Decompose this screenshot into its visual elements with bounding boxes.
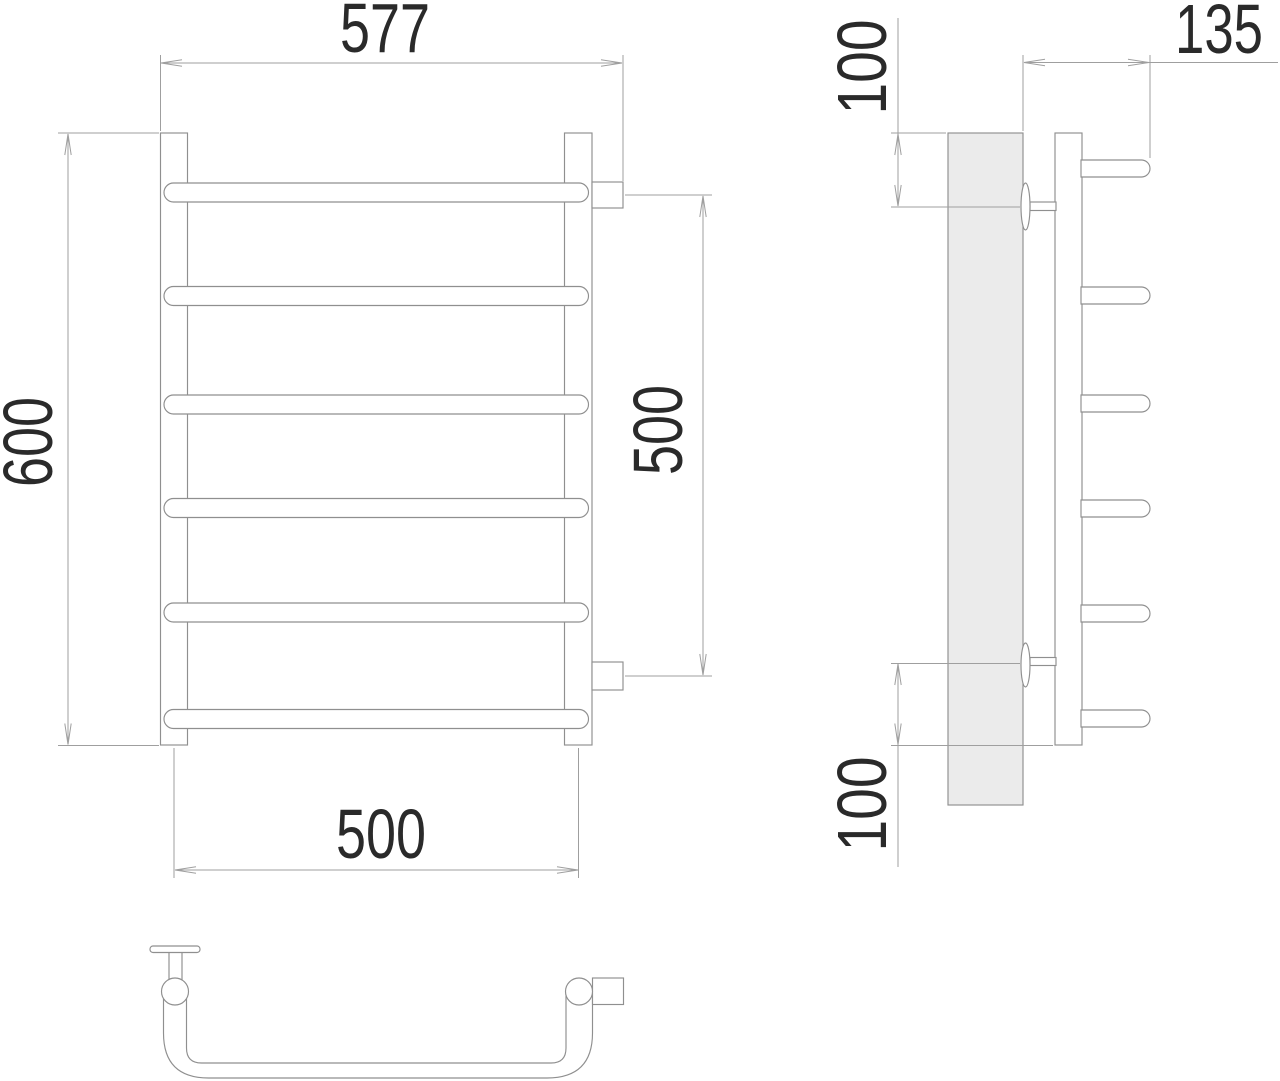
dimension-front-connector-spacing: 500 — [619, 195, 712, 676]
dim-label-side-bottom-offset: 100 — [823, 757, 901, 852]
side-bar-stub-1 — [1081, 160, 1150, 177]
dim-label-front-height: 600 — [0, 397, 67, 487]
front-bar-6 — [164, 710, 589, 729]
dim-label-side-depth: 135 — [1175, 0, 1263, 68]
front-view: 577 600 500 500 — [0, 0, 712, 878]
side-bar-stub-3 — [1081, 395, 1150, 412]
front-bottom-connector — [592, 662, 623, 690]
bracket-stem — [1030, 658, 1056, 666]
side-bar-stub-6 — [1081, 710, 1150, 727]
dim-label-connector-spacing: 500 — [619, 385, 697, 475]
bracket-flange — [1021, 643, 1030, 687]
dimension-front-rail-spacing: 500 — [174, 748, 579, 878]
bottom-left-rail-section — [162, 978, 189, 1005]
front-bar-5 — [164, 603, 589, 622]
bracket-stem — [1030, 202, 1056, 211]
dim-label-side-top-offset: 100 — [823, 20, 901, 115]
bottom-bracket-flange — [150, 946, 200, 953]
dim-label-rail-spacing: 500 — [336, 795, 426, 873]
bracket-flange — [1021, 183, 1030, 230]
side-bar-stub-4 — [1081, 500, 1150, 517]
bottom-view — [150, 946, 624, 1078]
front-left-rail — [161, 133, 188, 745]
side-view: 135 100 100 — [823, 0, 1278, 867]
bottom-right-rail-section — [566, 978, 593, 1005]
dimension-front-overall-height: 600 — [0, 133, 159, 746]
side-wall-plate — [948, 133, 1023, 805]
front-top-connector — [592, 182, 623, 208]
front-bar-1 — [164, 183, 589, 202]
side-top-bracket — [1021, 183, 1056, 230]
bottom-tube-outer — [164, 990, 593, 1078]
side-rail — [1055, 133, 1082, 745]
side-bar-stub-5 — [1081, 605, 1150, 622]
side-bar-stub-2 — [1081, 287, 1150, 304]
front-bar-2 — [164, 287, 589, 306]
bottom-connector — [593, 978, 624, 1005]
bottom-tube-inner — [187, 992, 567, 1063]
towel-rail-drawing: 577 600 500 500 — [0, 0, 1280, 1081]
technical-drawing-canvas: 577 600 500 500 — [0, 0, 1280, 1081]
front-bar-4 — [164, 499, 589, 518]
dim-label-front-width: 577 — [340, 0, 430, 67]
side-bottom-bracket — [1021, 643, 1056, 687]
front-bar-3 — [164, 395, 589, 414]
front-right-rail — [565, 133, 593, 745]
dimension-front-overall-width: 577 — [161, 0, 624, 181]
